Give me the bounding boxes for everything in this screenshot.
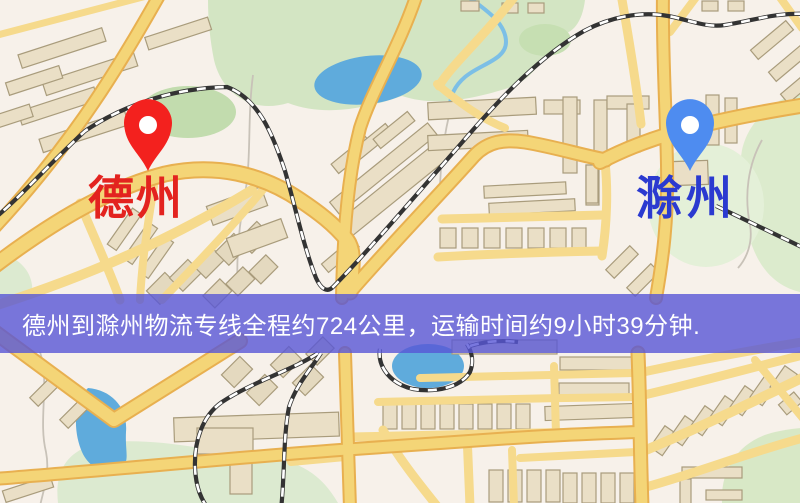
map-image (0, 0, 800, 503)
destination-city-label: 滁州 (636, 176, 736, 222)
origin-city-label: 德州 (88, 176, 184, 222)
route-info-banner: 德州到滁州物流专线全程约724公里，运输时间约9小时39分钟. (0, 294, 800, 353)
map-canvas[interactable]: 德州 滁州 德州到滁州物流专线全程约724公里，运输时间约9小时39分钟. (0, 0, 800, 503)
route-info-text: 德州到滁州物流专线全程约724公里，运输时间约9小时39分钟. (22, 306, 700, 341)
